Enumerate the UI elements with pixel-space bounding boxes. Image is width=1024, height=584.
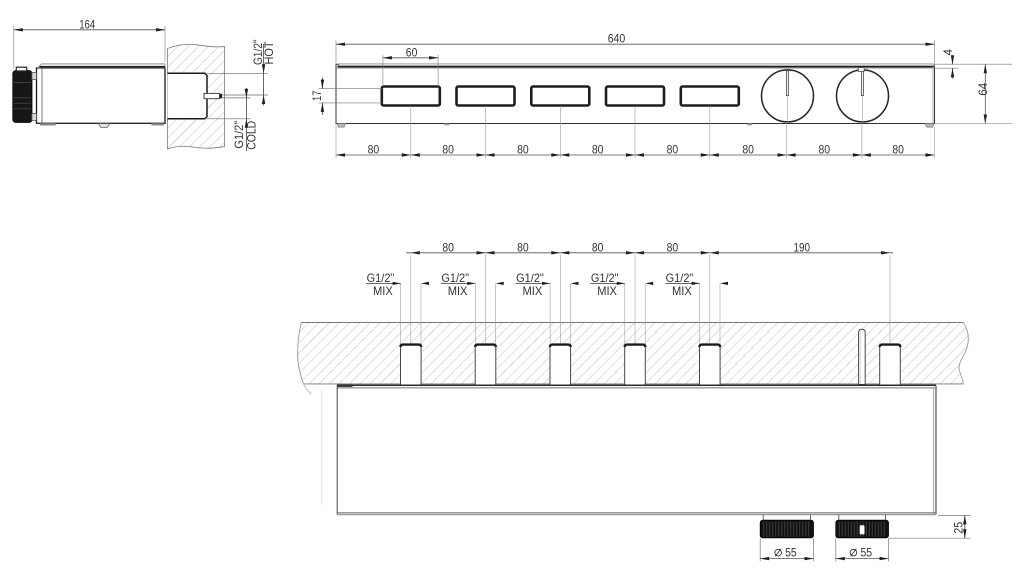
svg-text:80: 80 xyxy=(667,144,679,157)
svg-text:640: 640 xyxy=(608,32,626,45)
svg-text:190: 190 xyxy=(793,241,810,254)
svg-text:HOT: HOT xyxy=(263,42,276,65)
svg-text:164: 164 xyxy=(79,18,95,31)
svg-text:G1/2": G1/2" xyxy=(666,272,694,285)
svg-text:80: 80 xyxy=(517,241,529,254)
svg-text:80: 80 xyxy=(667,241,679,254)
svg-text:MIX: MIX xyxy=(597,285,617,298)
svg-text:80: 80 xyxy=(442,144,454,157)
svg-text:80: 80 xyxy=(818,144,830,157)
svg-text:MIX: MIX xyxy=(672,285,692,298)
svg-text:17: 17 xyxy=(311,91,324,101)
svg-text:G1/2": G1/2" xyxy=(233,121,246,149)
svg-text:25: 25 xyxy=(952,522,965,534)
svg-text:80: 80 xyxy=(592,241,604,254)
svg-text:G1/2": G1/2" xyxy=(441,272,469,285)
svg-text:4: 4 xyxy=(942,49,955,56)
svg-text:G1/2": G1/2" xyxy=(367,272,395,285)
svg-text:64: 64 xyxy=(977,82,990,96)
svg-text:80: 80 xyxy=(368,144,380,157)
svg-text:80: 80 xyxy=(517,144,529,157)
svg-text:80: 80 xyxy=(592,144,604,157)
svg-text:G1/2": G1/2" xyxy=(591,272,619,285)
svg-text:COLD: COLD xyxy=(245,121,258,150)
svg-text:55: 55 xyxy=(860,546,872,559)
svg-text:MIX: MIX xyxy=(523,285,543,298)
svg-text:55: 55 xyxy=(785,546,797,559)
svg-text:80: 80 xyxy=(442,241,454,254)
svg-text:MIX: MIX xyxy=(373,285,393,298)
svg-text:80: 80 xyxy=(742,144,754,157)
svg-text:G1/2": G1/2" xyxy=(516,272,544,285)
svg-text:60: 60 xyxy=(406,46,418,59)
svg-text:80: 80 xyxy=(892,144,904,157)
svg-text:MIX: MIX xyxy=(448,285,468,298)
